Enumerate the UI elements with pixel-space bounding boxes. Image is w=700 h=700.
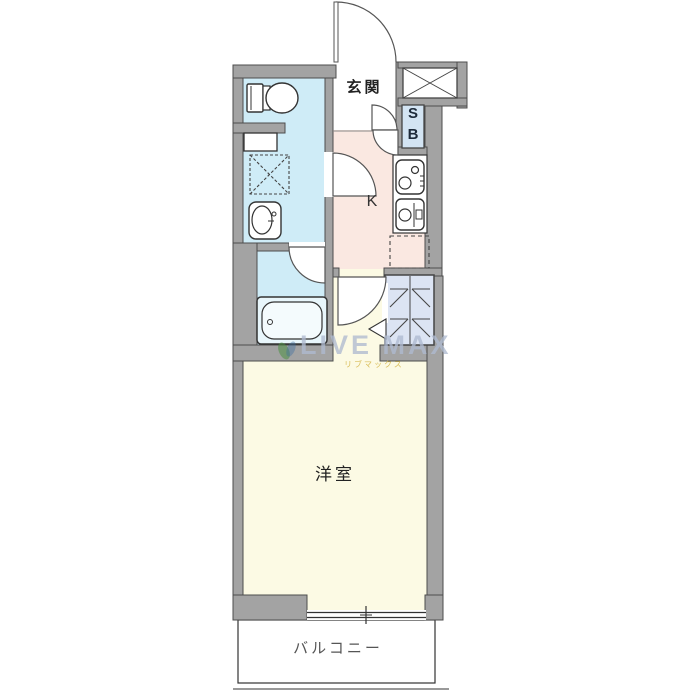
wall-bottom-right bbox=[425, 595, 443, 620]
watermark-brand: LIVE MAX bbox=[300, 329, 520, 361]
kitchen-label: K bbox=[356, 192, 388, 211]
wall-bottom-left bbox=[233, 595, 307, 620]
genkan-label: 玄関 bbox=[333, 79, 396, 97]
shoebox-label-s: S bbox=[402, 105, 424, 123]
pipe-space-box bbox=[403, 68, 457, 98]
wall-top-left bbox=[233, 65, 336, 78]
sink-icon bbox=[396, 160, 424, 194]
wall-bathroom-left bbox=[233, 243, 257, 345]
western-room-label: 洋室 bbox=[293, 465, 377, 485]
stove-icon bbox=[396, 199, 424, 230]
wall-washroom-kitchen-upper bbox=[325, 78, 333, 153]
balcony-label: バルコニー bbox=[266, 640, 410, 658]
entrance-door-swing bbox=[334, 2, 396, 62]
floorplan-canvas: 玄関 S B K 洋室 バルコニー LIVE MAX リブマックス bbox=[0, 0, 700, 700]
watermark-subtext: リブマックス bbox=[344, 360, 434, 370]
washbasin-icon bbox=[249, 202, 281, 239]
wall-kitchen-bottom-jamb bbox=[333, 268, 339, 277]
counter-niche bbox=[244, 133, 277, 151]
western-room-floor-strip bbox=[307, 595, 427, 612]
toilet-icon bbox=[247, 83, 298, 113]
wall-toilet-stub bbox=[233, 123, 285, 133]
shoebox-label-b: B bbox=[402, 126, 424, 144]
